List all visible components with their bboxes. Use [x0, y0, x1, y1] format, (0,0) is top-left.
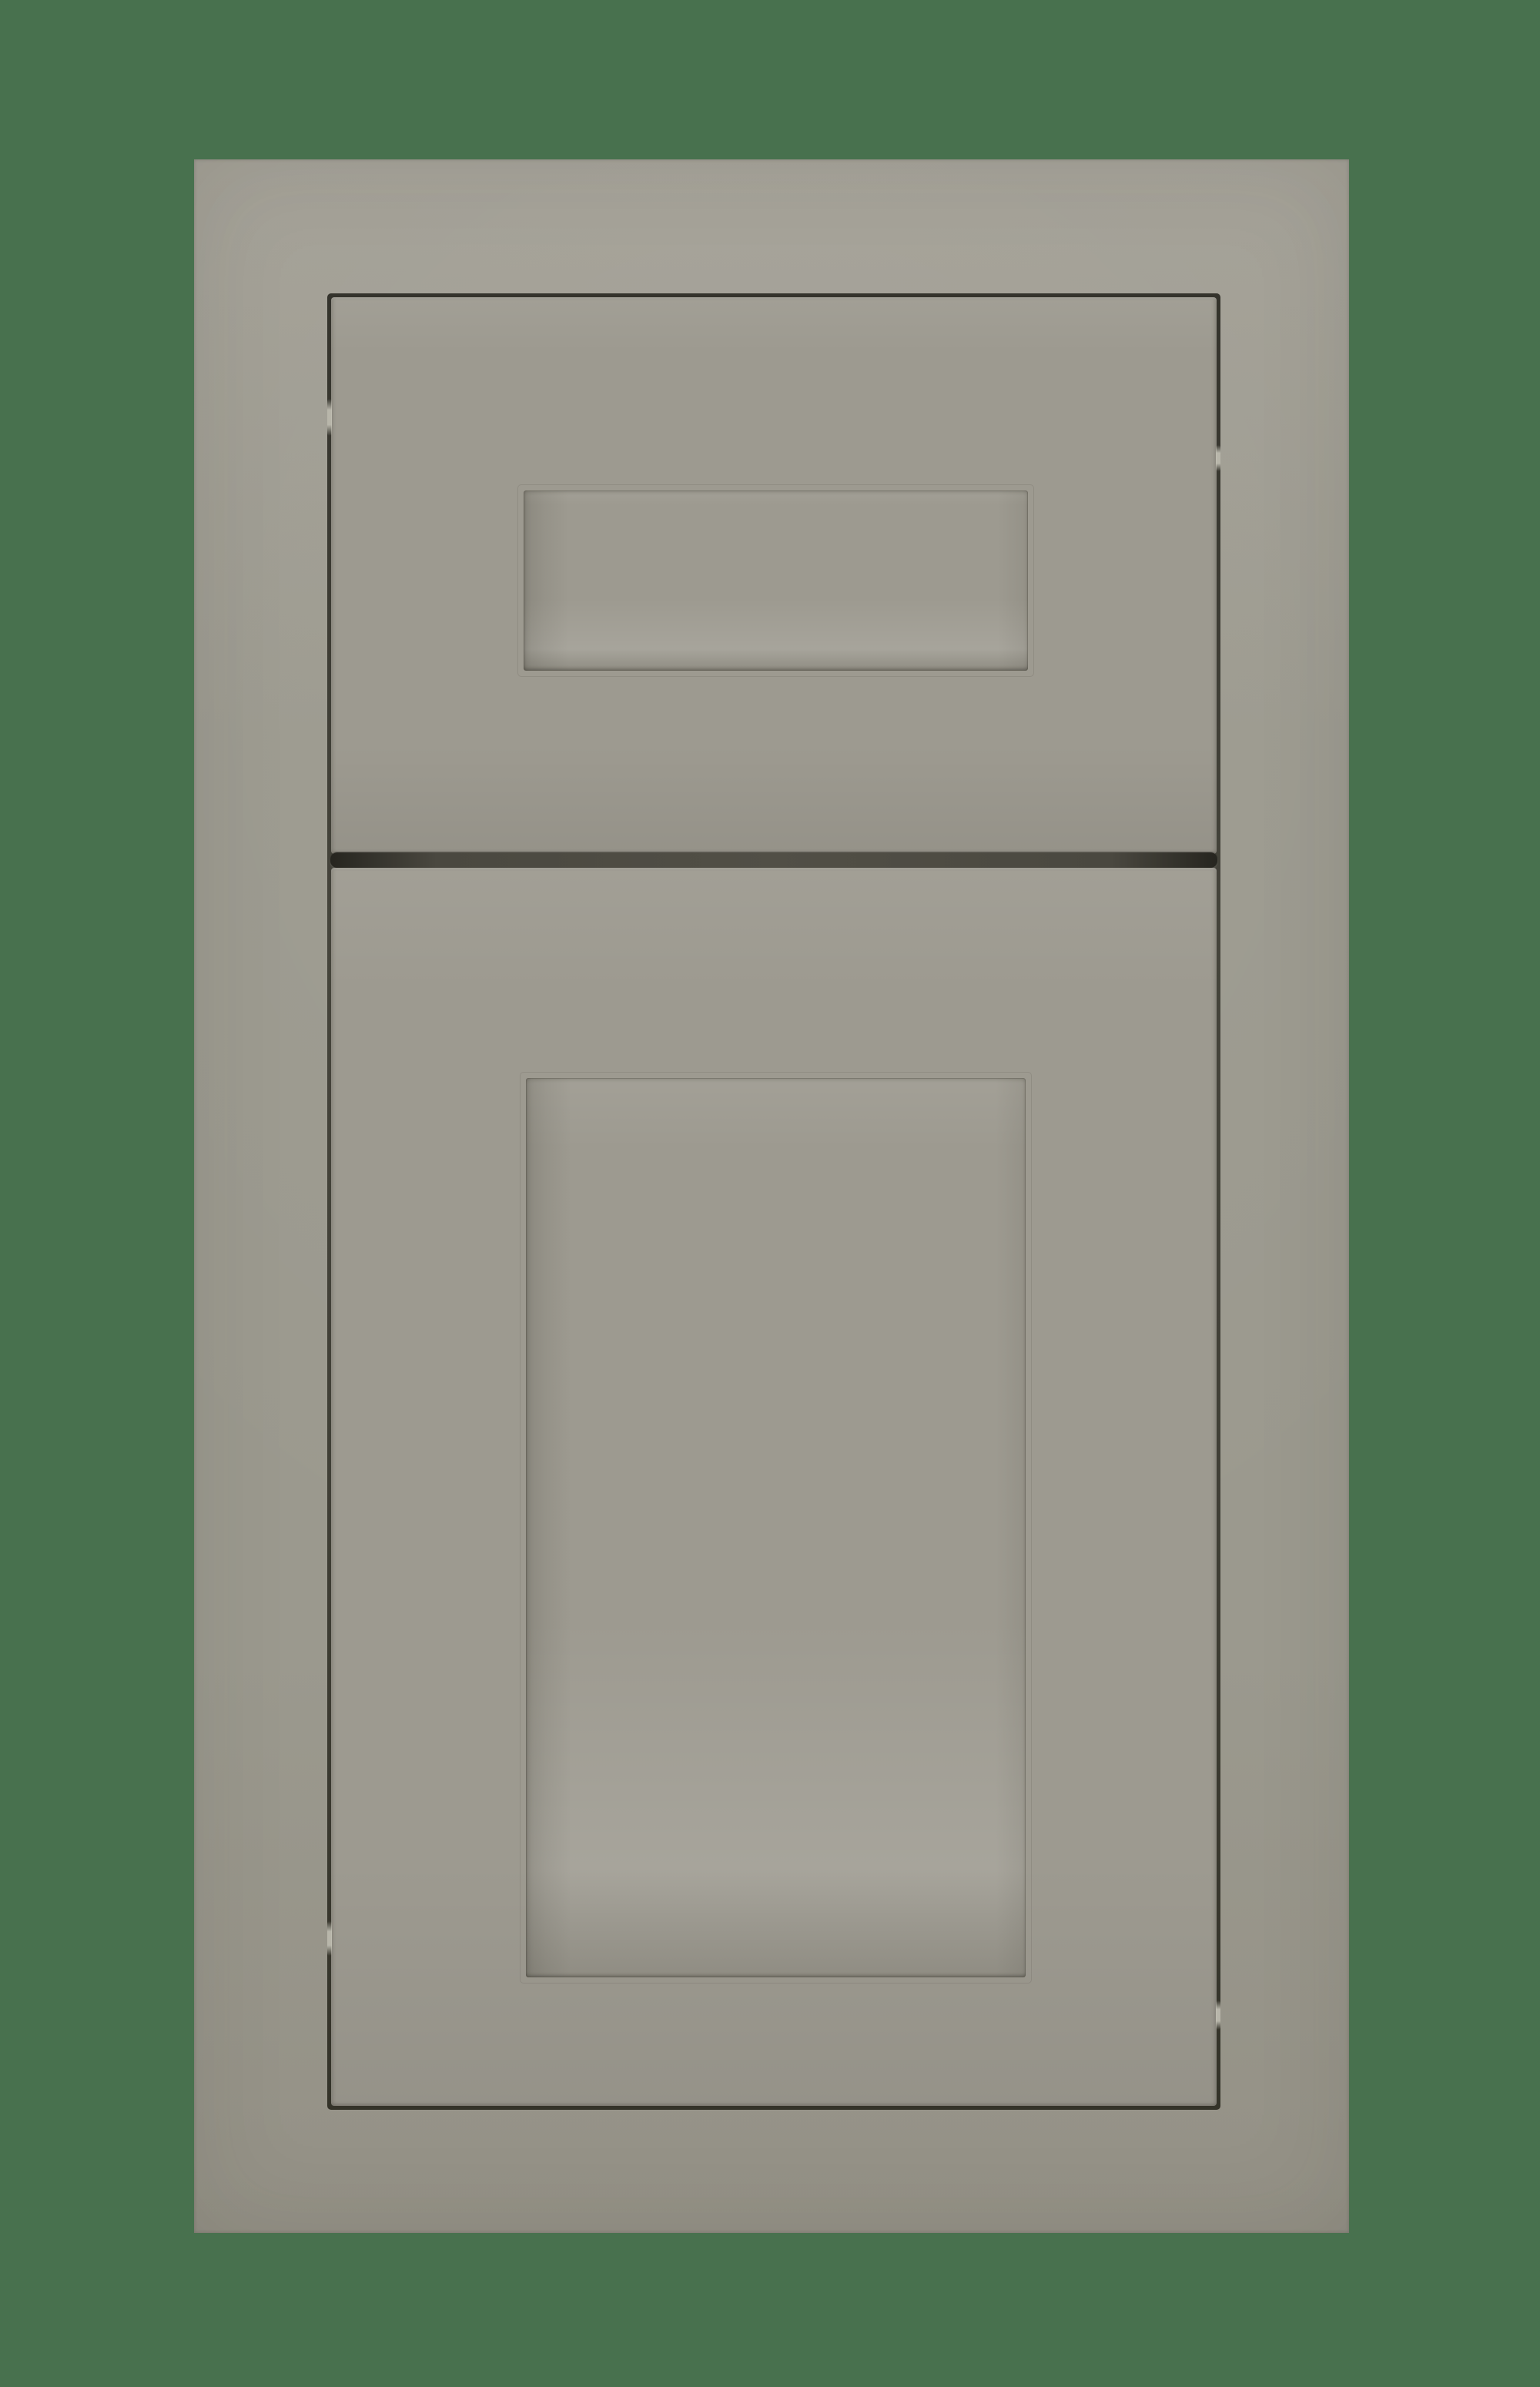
- drawer-door-gap: [330, 852, 1217, 868]
- door-recessed-panel: [526, 1078, 1026, 1977]
- product-photo-backdrop: [0, 0, 1540, 2387]
- hinge-glint: [327, 399, 332, 436]
- hinge-glint: [327, 1921, 332, 1956]
- hinge-glint: [1216, 2000, 1220, 2030]
- cabinet-sample: [194, 159, 1349, 2233]
- drawer-recessed-panel: [524, 490, 1028, 671]
- door-front: [331, 868, 1217, 2106]
- face-frame-opening: [327, 293, 1220, 2110]
- drawer-front: [331, 297, 1217, 854]
- hinge-glint: [1216, 445, 1220, 471]
